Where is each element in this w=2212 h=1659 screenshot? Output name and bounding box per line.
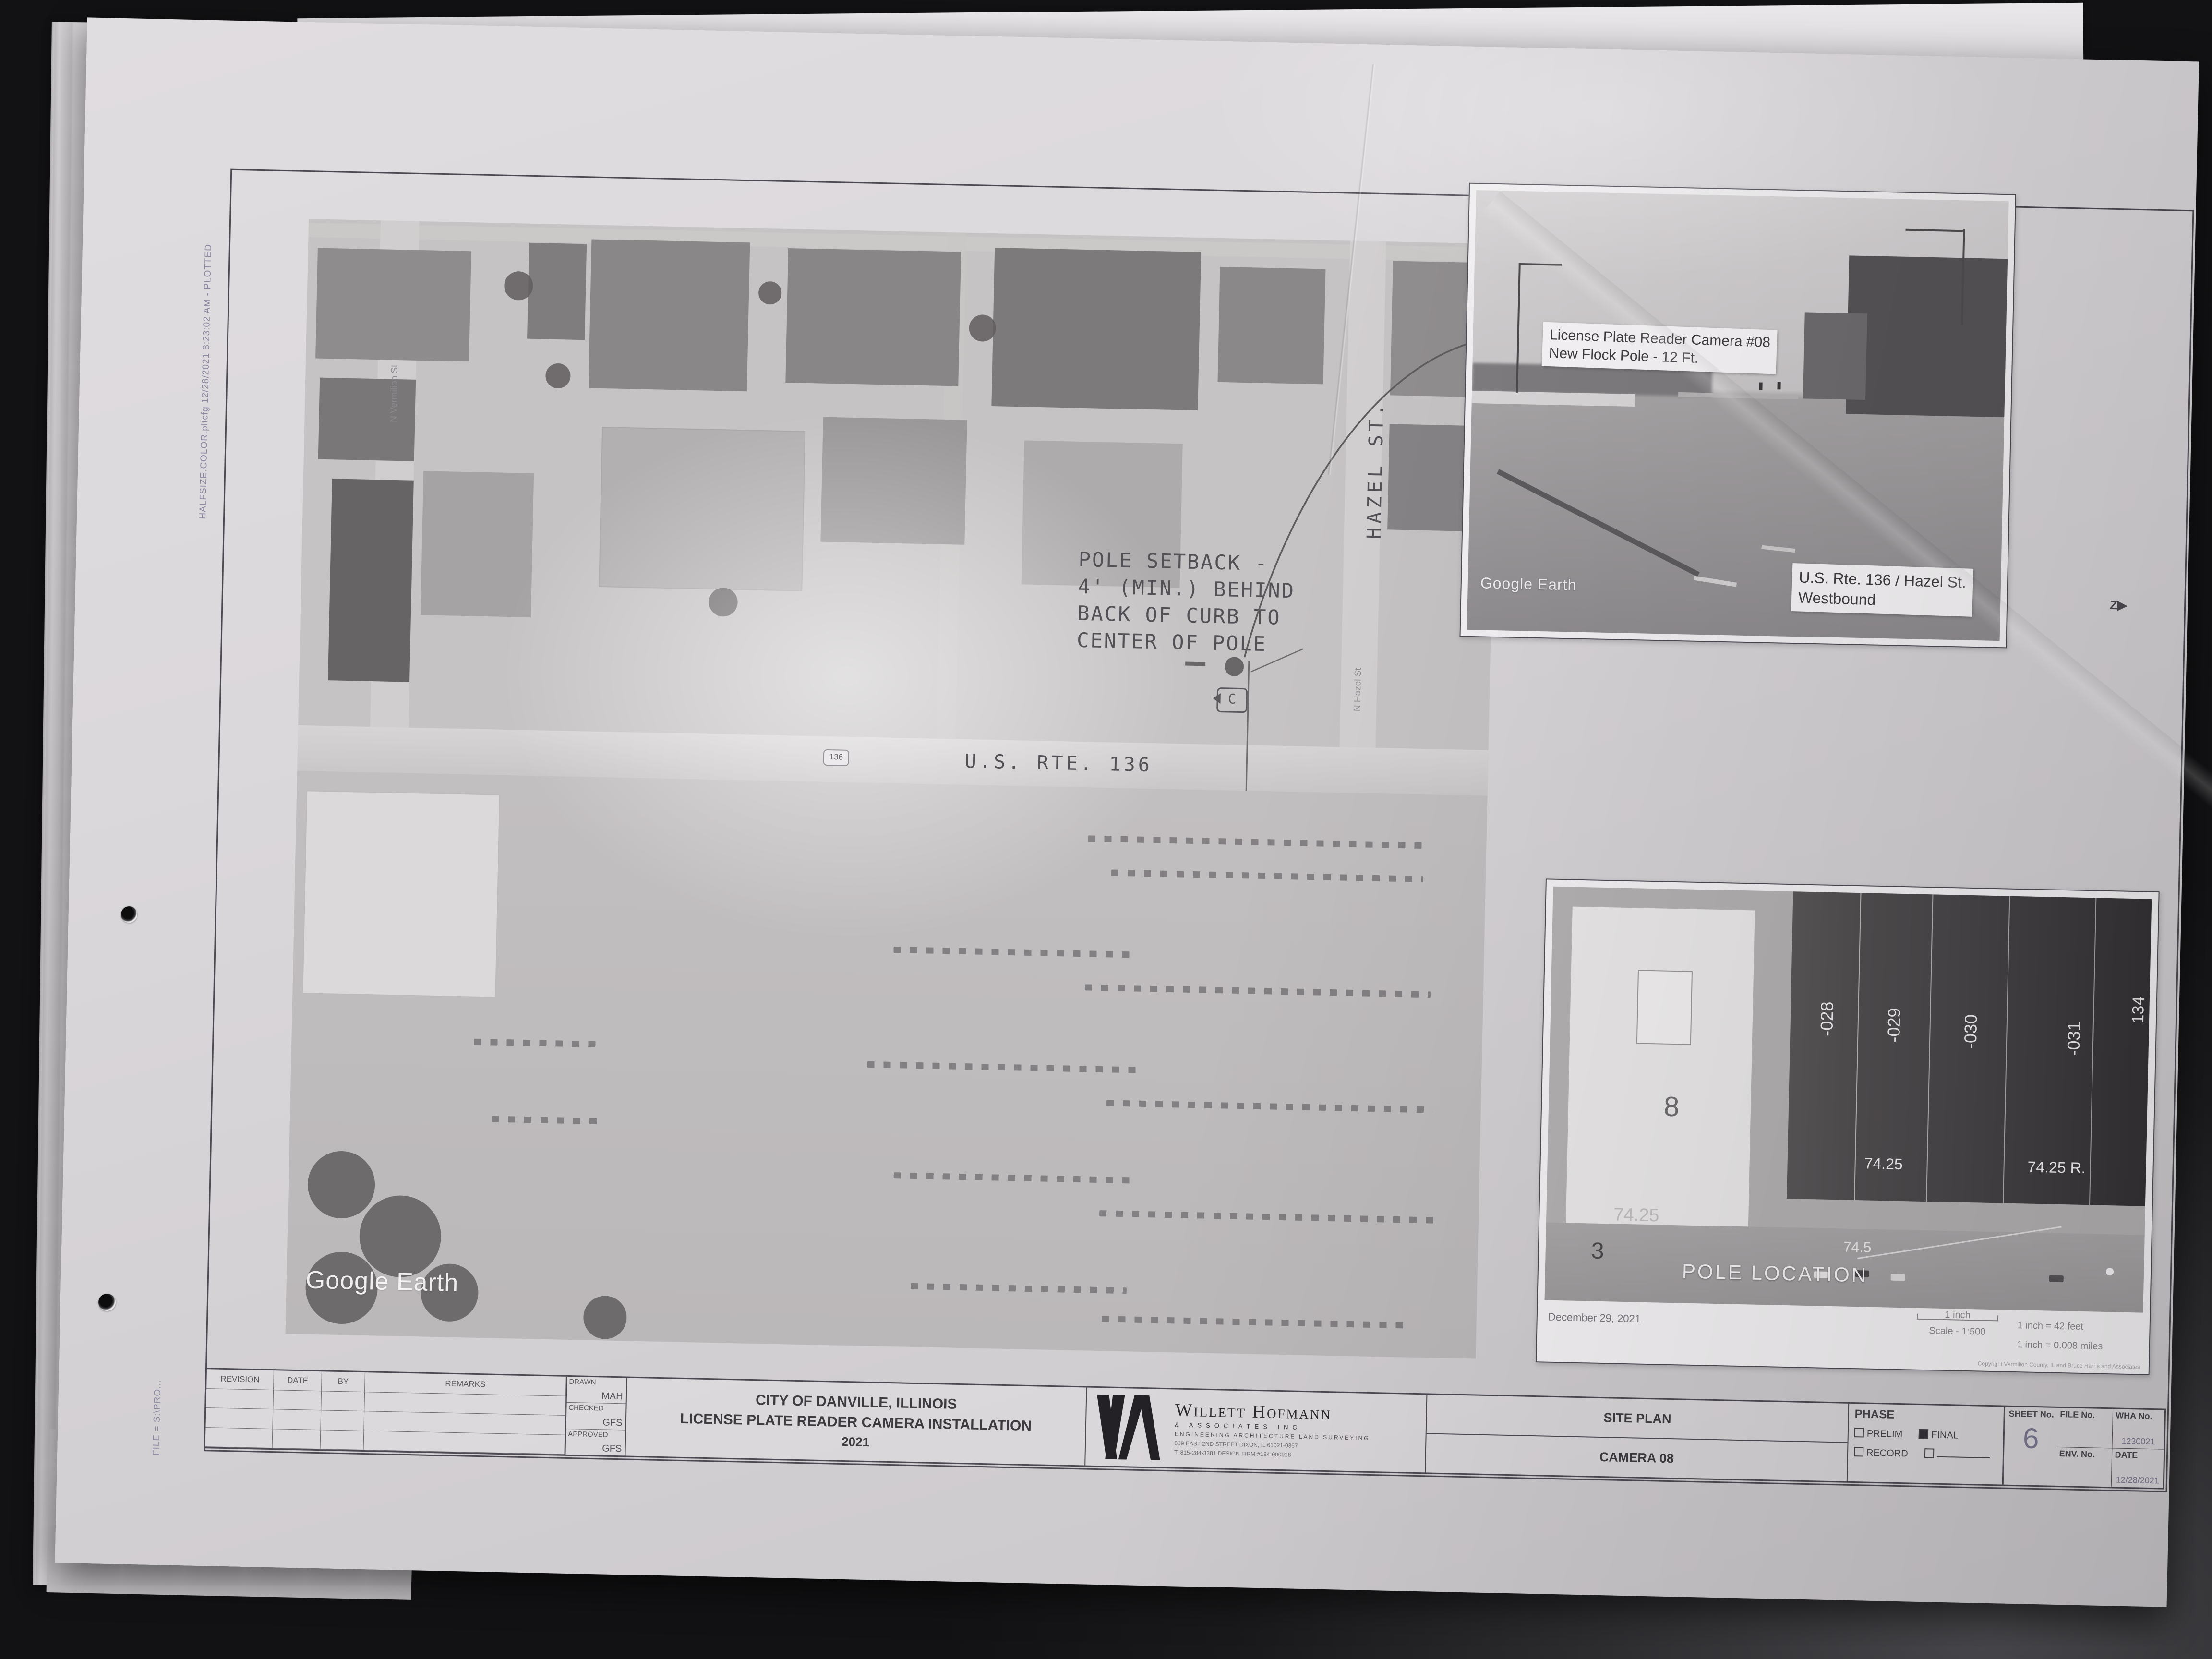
paper-shading [55, 17, 2199, 1607]
photo-of-printed-site-plan: HALFSIZE.COLOR.pltcfg 12/28/2021 8:23:02… [0, 0, 2212, 1659]
site-plan-sheet: HALFSIZE.COLOR.pltcfg 12/28/2021 8:23:02… [55, 17, 2199, 1607]
punch-hole [121, 906, 137, 923]
punch-hole [98, 1294, 116, 1311]
